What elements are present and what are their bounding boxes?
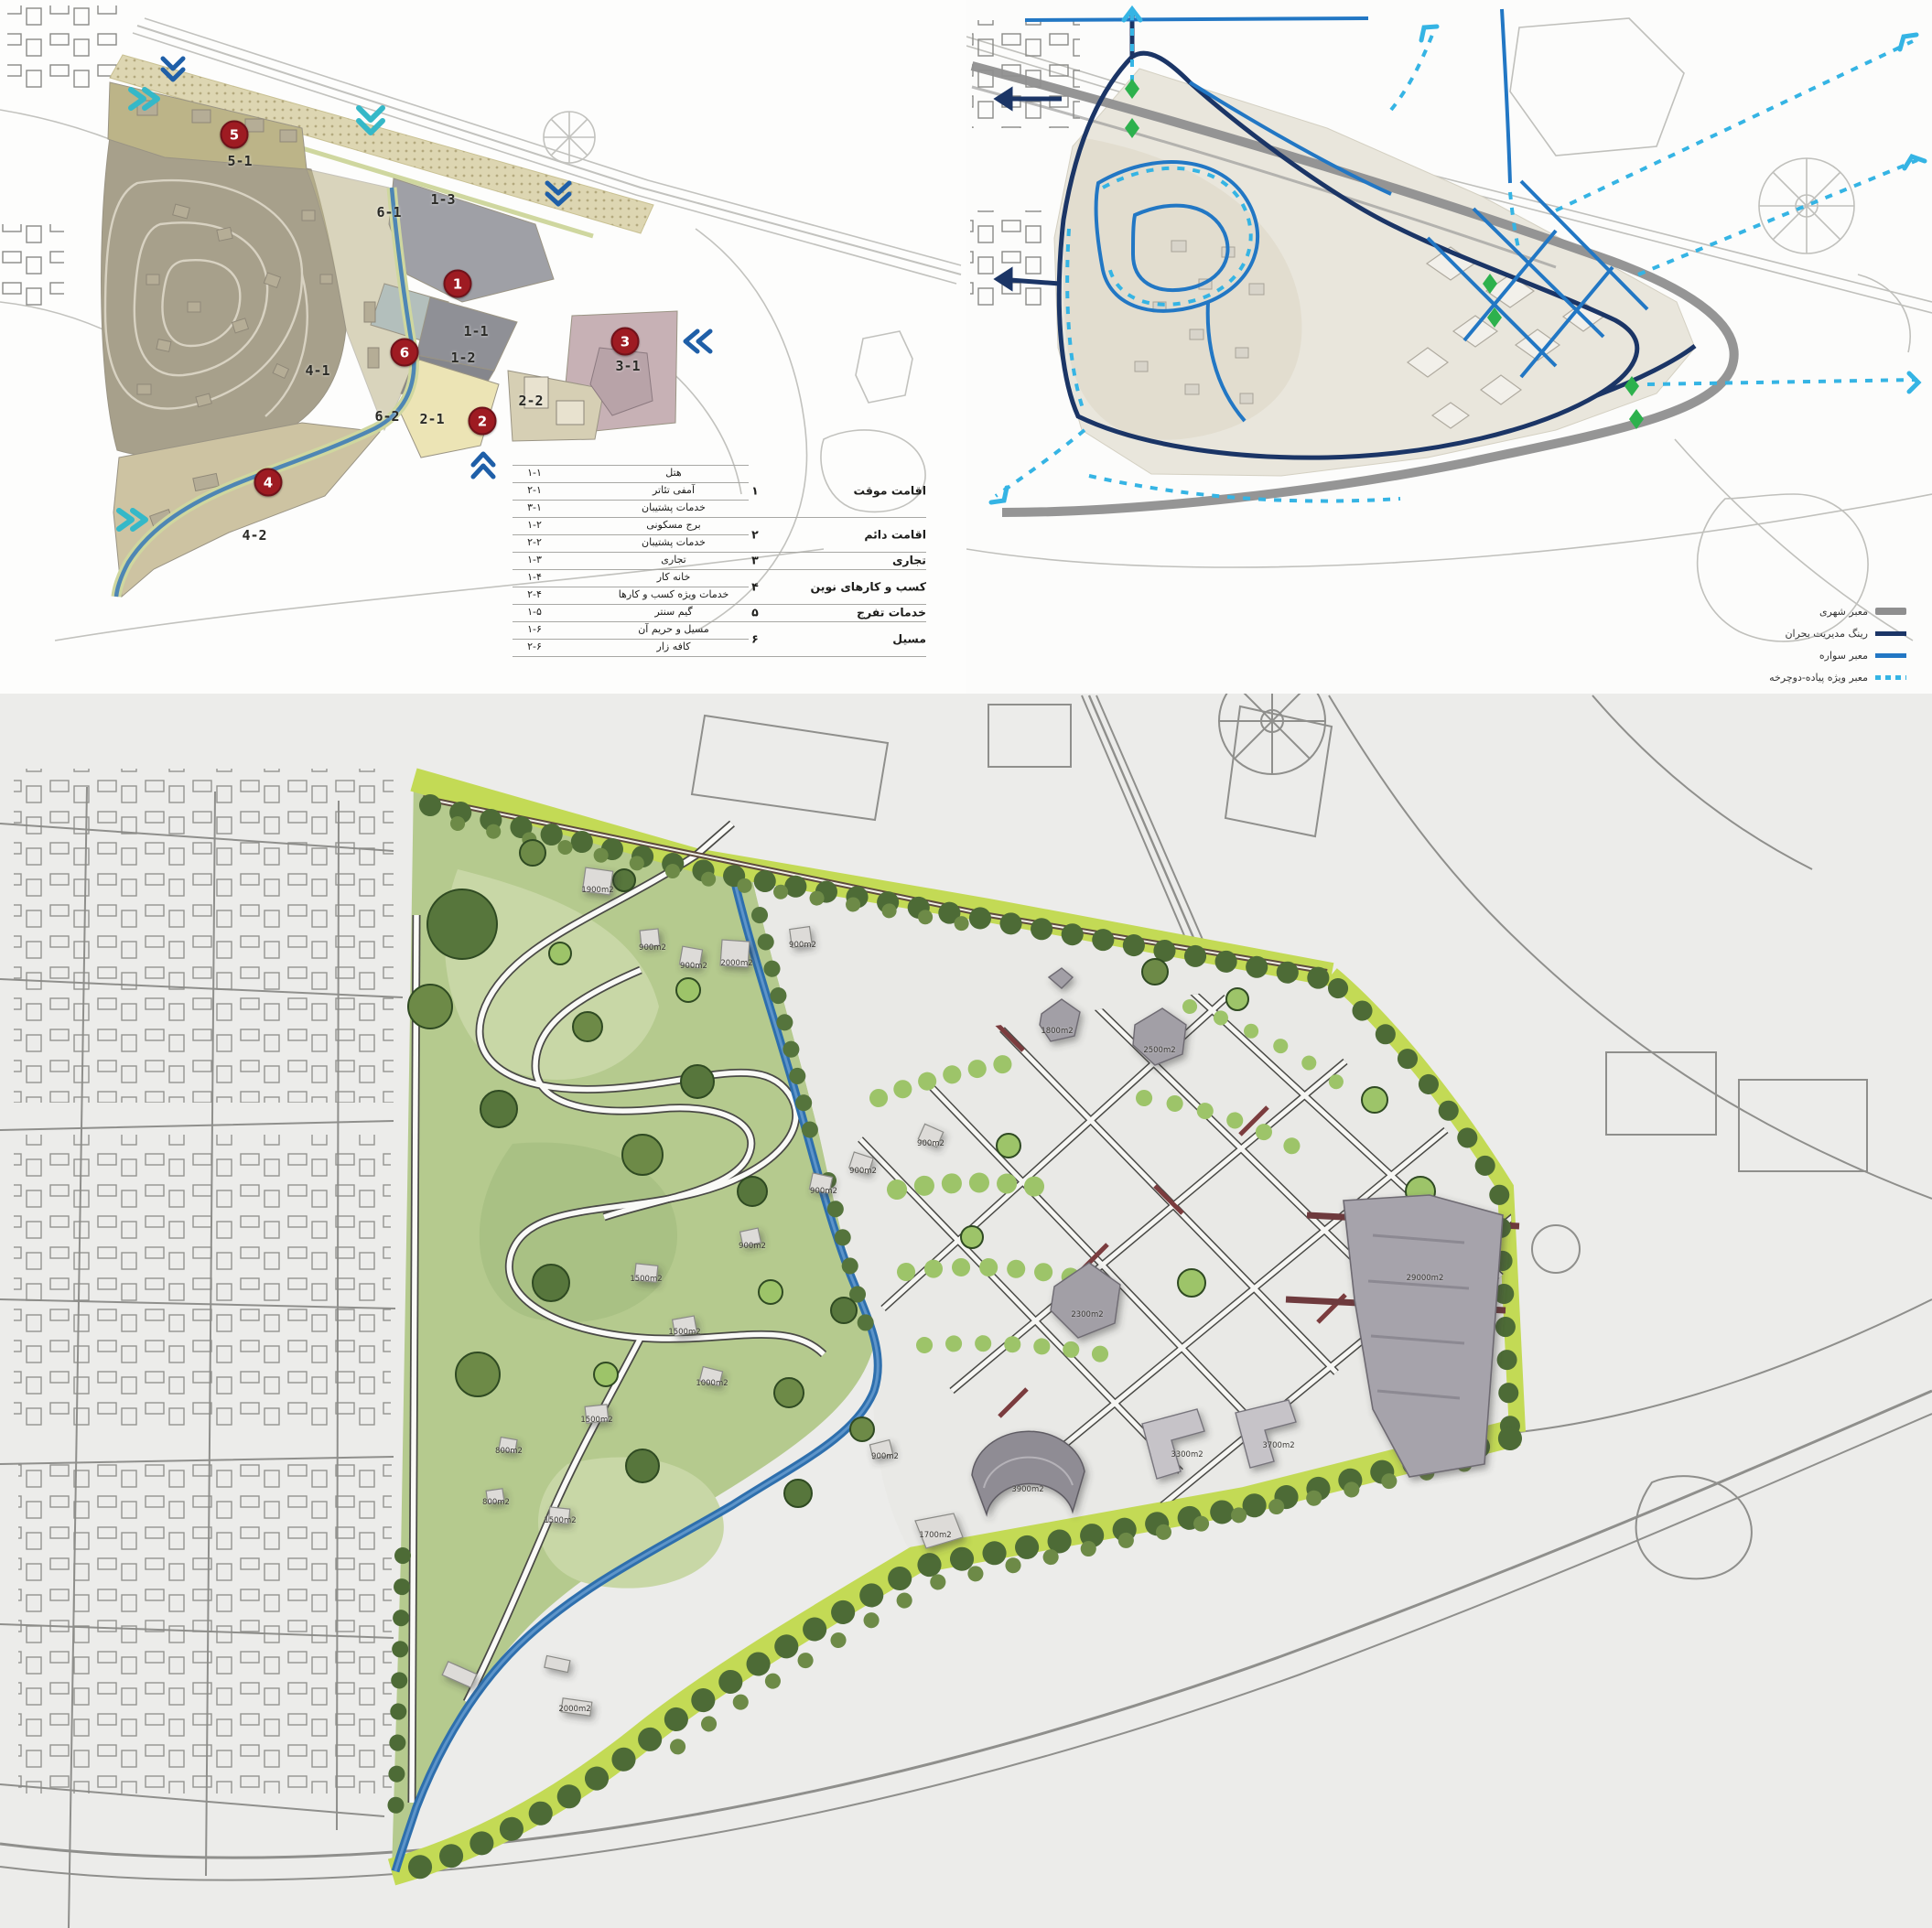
building-area-label: 900m2 xyxy=(639,943,666,953)
legend-category: ۳تجاری xyxy=(741,554,926,567)
circulation-plan-map xyxy=(966,0,1932,695)
building-area-label: 2000m2 xyxy=(558,1705,590,1714)
zone-number-badge: 5 xyxy=(221,121,249,149)
crisis-ring-swatch xyxy=(1875,631,1906,636)
zone-label: 6-1 xyxy=(376,204,401,221)
building-area-label: 900m2 xyxy=(917,1139,944,1148)
legend-row: معبر شهری xyxy=(1742,600,1906,622)
zone-label: 2-2 xyxy=(518,393,543,409)
building-area-label: 1500m2 xyxy=(580,1416,612,1425)
legend-category: ۲اقامت دائم xyxy=(741,528,926,542)
legend-category: ۶مسیل xyxy=(741,632,926,646)
urban-road-swatch xyxy=(1875,608,1906,615)
zone-label: 1-3 xyxy=(430,191,455,208)
building-area-label: 1500m2 xyxy=(544,1516,576,1525)
zone-number-badge: 1 xyxy=(444,270,472,298)
zone-label: 4-2 xyxy=(242,527,266,544)
building-area-label: 900m2 xyxy=(871,1452,899,1461)
building-area-label: 3900m2 xyxy=(1011,1485,1043,1494)
building-area-label: 1900m2 xyxy=(581,886,613,895)
zone-label: 1-1 xyxy=(463,323,488,339)
zone-number-badge: 3 xyxy=(611,328,640,356)
zone-label: 4-1 xyxy=(305,362,329,379)
masterplan-render xyxy=(0,694,1932,1928)
zone-label: 3-1 xyxy=(615,358,640,374)
legend-category: ۵خدمات تفرج xyxy=(741,606,926,619)
zone-label: 5-1 xyxy=(227,153,252,169)
building-area-label: 900m2 xyxy=(789,941,816,950)
legend-row: ۳-۱خدمات پشتیبان xyxy=(513,500,926,517)
building-area-label: 29000m2 xyxy=(1407,1274,1444,1283)
building-area-label: 900m2 xyxy=(810,1187,837,1196)
zone-label: 6-2 xyxy=(374,408,399,425)
vehicular-road-swatch xyxy=(1875,653,1906,658)
building-area-label: 1800m2 xyxy=(1041,1027,1073,1036)
building-area-label: 1000m2 xyxy=(696,1379,728,1388)
zone-number-badge: 2 xyxy=(469,407,497,436)
building-area-label: 900m2 xyxy=(739,1242,766,1251)
building-area-label: 900m2 xyxy=(680,962,707,971)
legend-row: معبر ویژه پیاده-دوچرخه xyxy=(1742,666,1906,688)
building-area-label: 1500m2 xyxy=(630,1275,662,1284)
zone-number-badge: 4 xyxy=(254,469,283,497)
urban-design-board: 5-16-11-31-11-24-16-22-12-23-14-2 516234… xyxy=(0,0,1932,1928)
legend-row: ۱-۱هتل xyxy=(513,465,926,482)
legend-category: ۴کسب و کارهای نوین xyxy=(741,580,926,594)
building-area-label: 800m2 xyxy=(482,1498,510,1507)
legend-row: معبر سواره xyxy=(1742,644,1906,666)
building-area-label: 2000m2 xyxy=(720,959,752,968)
building-area-label: 1500m2 xyxy=(668,1328,700,1337)
building-area-label: 3700m2 xyxy=(1262,1441,1294,1450)
building-area-label: 2300m2 xyxy=(1071,1310,1103,1319)
zone-label: 1-2 xyxy=(450,350,475,366)
building-area-label: 1700m2 xyxy=(919,1531,951,1540)
legend-category: ۱اقامت موقت xyxy=(741,484,926,498)
bike-path-swatch xyxy=(1875,675,1906,680)
building-area-label: 800m2 xyxy=(495,1447,523,1456)
landuse-legend: ۱-۱هتل ۲-۱آمفی تئاتر ۳-۱خدمات پشتیبان ۱-… xyxy=(513,465,926,659)
circulation-legend: معبر شهری رینگ مدیریت بحران معبر سواره م… xyxy=(1742,600,1906,688)
zone-number-badge: 6 xyxy=(391,339,419,367)
zone-label: 2-1 xyxy=(419,411,444,427)
building-area-label: 2500m2 xyxy=(1143,1046,1175,1055)
building-area-label: 3300m2 xyxy=(1171,1450,1203,1459)
building-area-label: 900m2 xyxy=(849,1167,877,1176)
legend-row: رینگ مدیریت بحران xyxy=(1742,622,1906,644)
